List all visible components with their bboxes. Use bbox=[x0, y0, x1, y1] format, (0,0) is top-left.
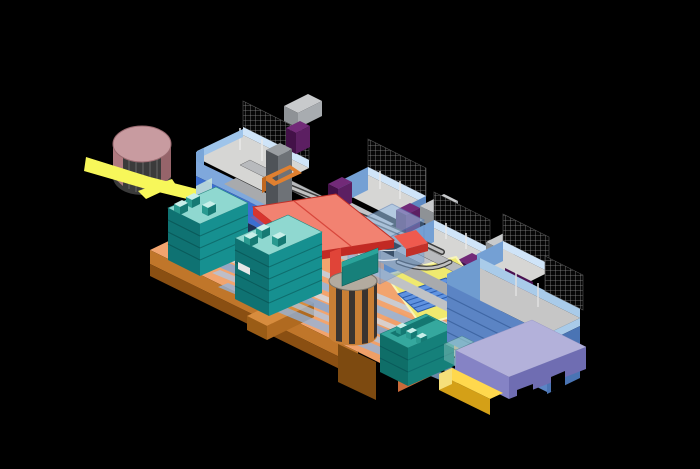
cad-viewport[interactable] bbox=[0, 0, 700, 469]
cad-canvas[interactable] bbox=[0, 0, 700, 469]
gantry-post bbox=[262, 176, 266, 193]
round-tank-top bbox=[113, 126, 171, 162]
